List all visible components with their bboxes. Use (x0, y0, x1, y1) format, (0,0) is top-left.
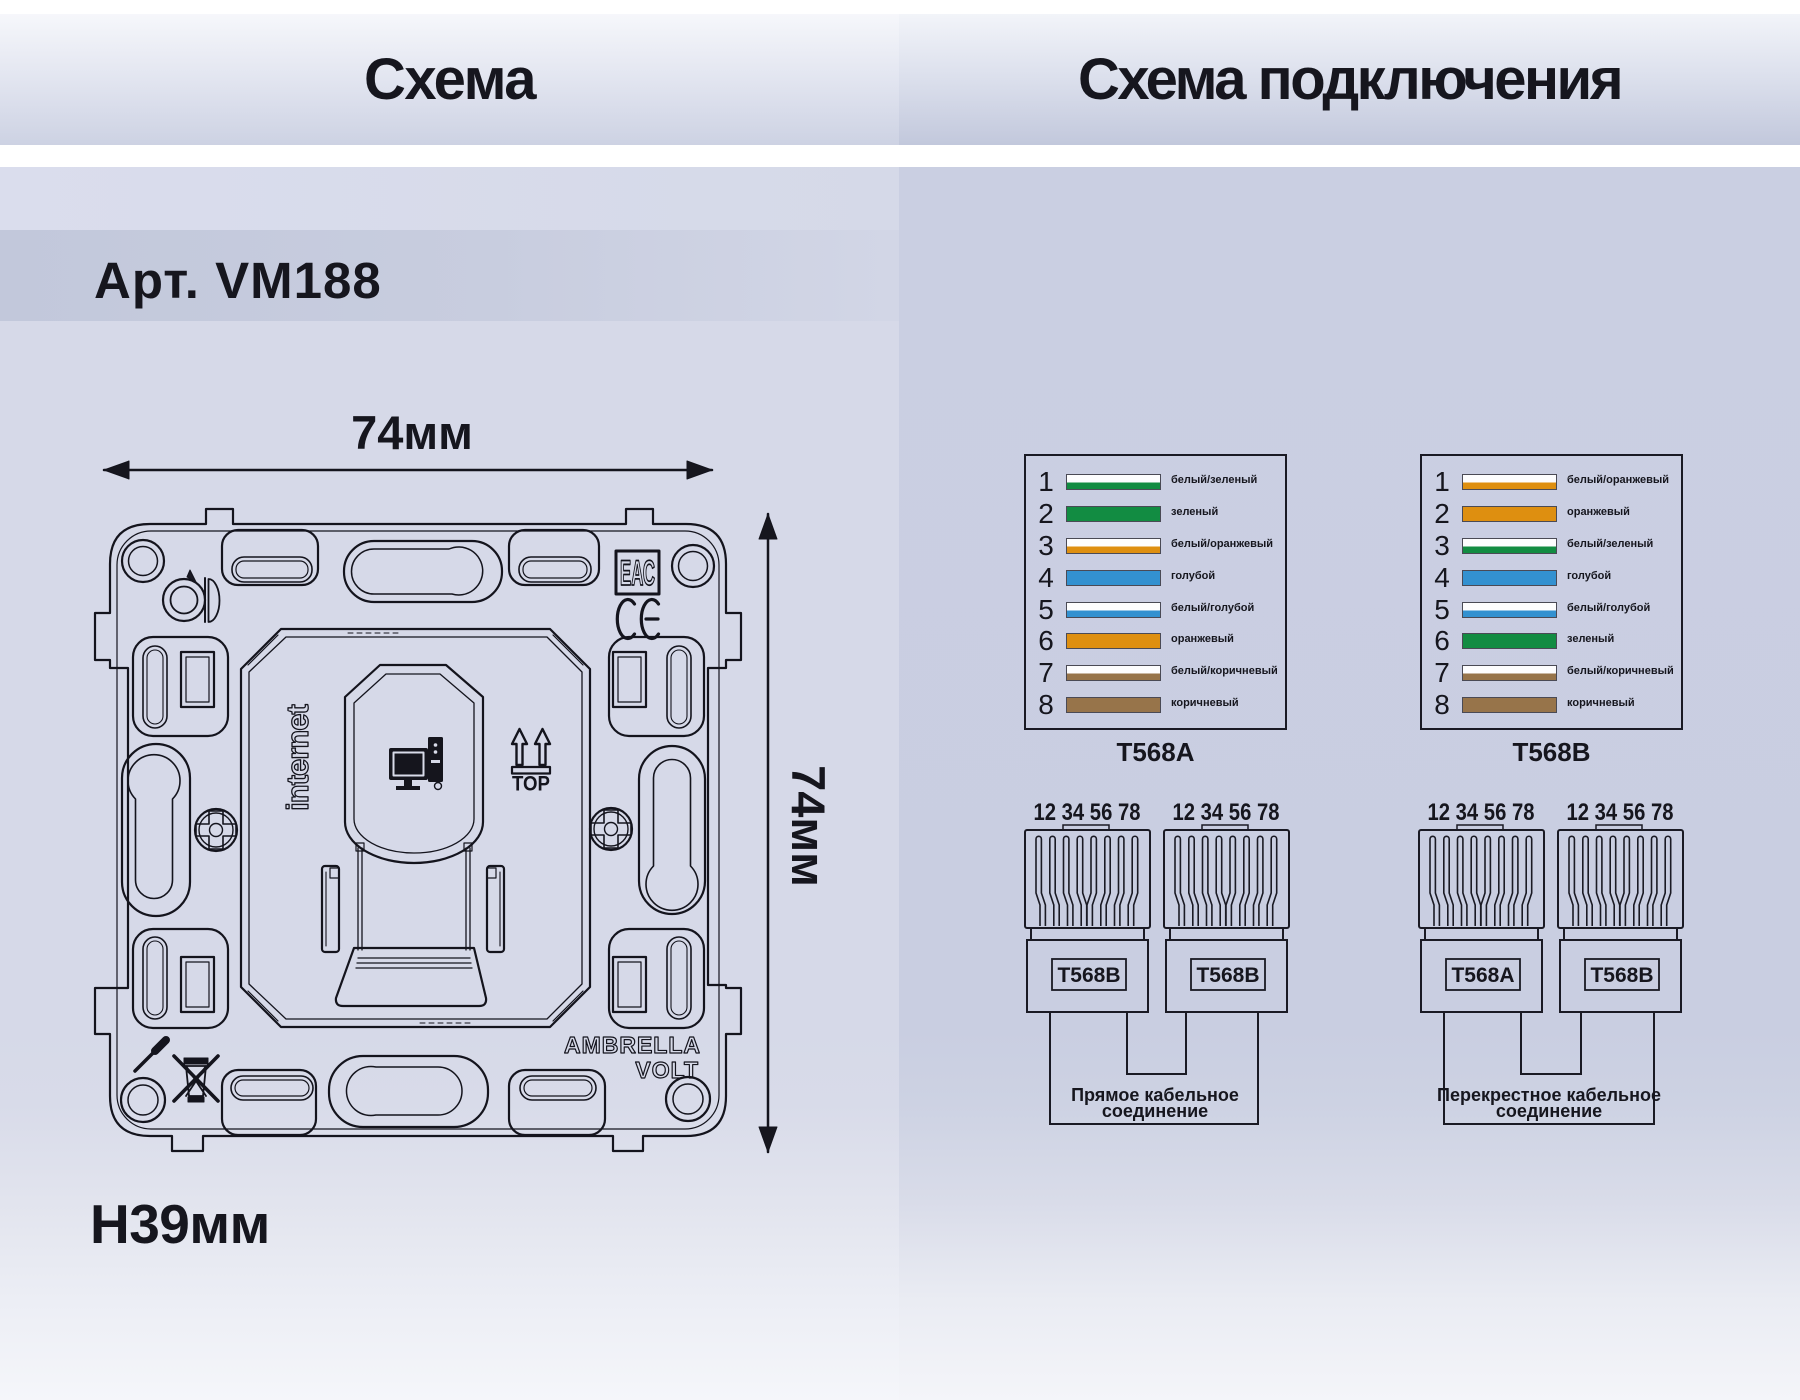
svg-text:T568B: T568B (1196, 964, 1259, 987)
svg-text:12 34 56 78: 12 34 56 78 (1428, 799, 1535, 826)
svg-text:12 34 56 78: 12 34 56 78 (1034, 799, 1141, 826)
svg-text:T568B: T568B (1590, 964, 1653, 987)
svg-text:TOP: TOP (512, 773, 550, 796)
svg-text:ЕАС: ЕАС (620, 554, 655, 593)
svg-text:12 34 56 78: 12 34 56 78 (1567, 799, 1674, 826)
svg-text:T568B: T568B (1057, 964, 1120, 987)
svg-text:12 34 56 78: 12 34 56 78 (1173, 799, 1280, 826)
svg-text:VOLT: VOLT (635, 1057, 699, 1083)
svg-text:74мм: 74мм (351, 406, 473, 459)
svg-text:internet: internet (280, 704, 315, 810)
svg-text:74мм: 74мм (782, 765, 835, 887)
svg-text:T568A: T568A (1451, 964, 1514, 987)
svg-text:AMBRELLA: AMBRELLA (564, 1032, 701, 1058)
